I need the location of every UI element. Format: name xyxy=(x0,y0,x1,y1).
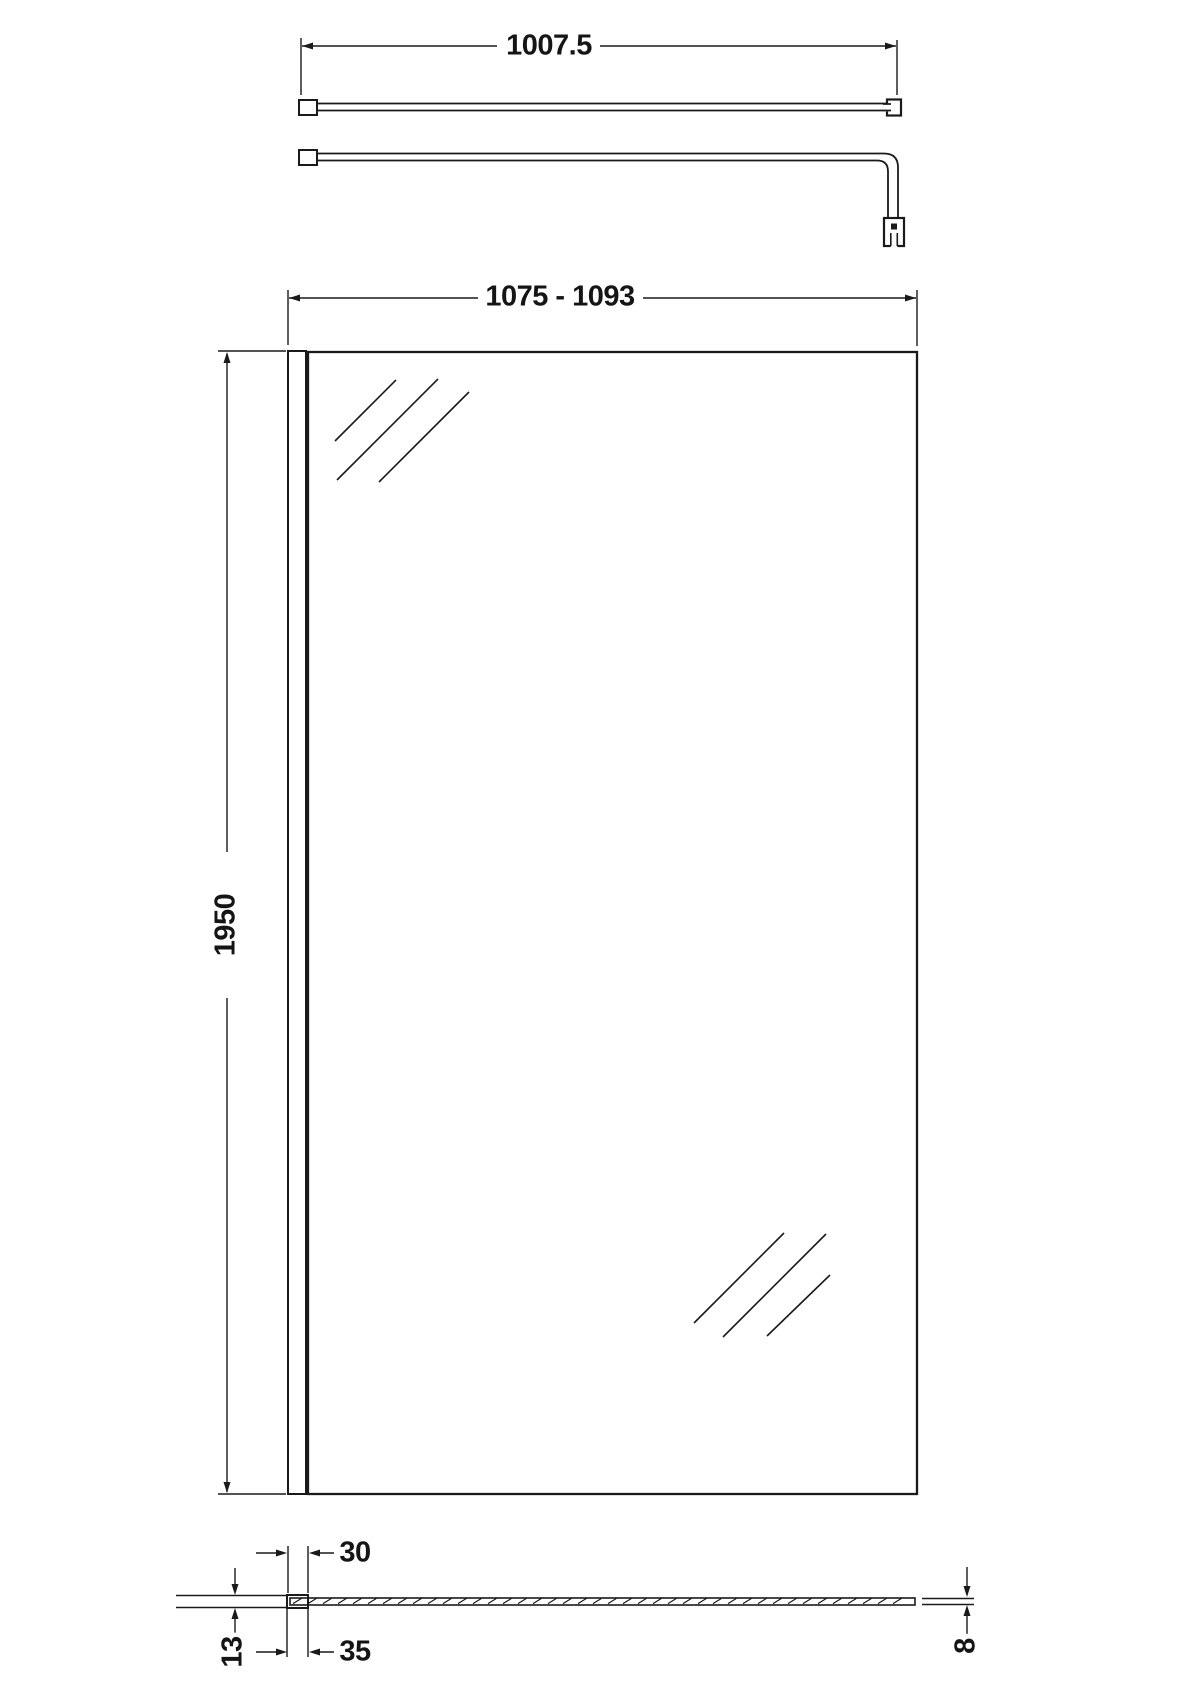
dim-label-profile-front-width: 30 xyxy=(335,1539,374,1568)
clamp-fork-slot xyxy=(891,233,898,248)
arrow-left-icon xyxy=(309,1649,320,1656)
panel-front-elevation xyxy=(288,351,917,1494)
glass-mark-line xyxy=(694,1233,784,1323)
dim-label-height: 1950 xyxy=(212,890,241,961)
support-bar-inner-edge xyxy=(317,161,888,219)
clamp-screw-icon xyxy=(891,224,897,230)
support-bar-side-view xyxy=(299,100,901,116)
support-bar-tube xyxy=(317,104,889,111)
shower-screen-technical-drawing: 1007.5 1075 - 1093 1950 30 35 13 8 xyxy=(0,0,1200,1698)
glass-hatch-bottom-right xyxy=(694,1233,830,1337)
dim-label-glass-thickness: 8 xyxy=(952,1634,981,1658)
support-bar-plan-view xyxy=(299,150,904,248)
arrow-right-icon xyxy=(276,1550,287,1557)
drawing-linework xyxy=(0,0,1200,1698)
glass-mark-line xyxy=(335,380,396,441)
plan-section-view xyxy=(287,1595,915,1608)
dim-label-bar-length: 1007.5 xyxy=(502,32,596,61)
profile-depth-extension-lines xyxy=(287,1609,308,1657)
wall-bracket xyxy=(299,150,317,165)
profile-thickness-extension-lines xyxy=(176,1596,286,1608)
wall-bracket xyxy=(299,100,317,115)
arrow-up-icon xyxy=(224,352,231,363)
arrow-up-icon xyxy=(964,1605,971,1616)
dim-label-profile-overall-depth: 35 xyxy=(335,1638,374,1667)
arrow-down-icon xyxy=(224,1482,231,1493)
glass-thickness-extension-lines xyxy=(922,1599,974,1605)
glass-mark-line xyxy=(337,379,438,480)
arrow-down-icon xyxy=(232,1584,239,1595)
arrow-left-icon xyxy=(309,1550,320,1557)
glass-mark-line xyxy=(379,392,469,482)
arrow-right-icon xyxy=(276,1649,287,1656)
arrow-right-icon xyxy=(905,295,916,302)
arrow-down-icon xyxy=(964,1586,971,1597)
arrow-up-icon xyxy=(232,1608,239,1619)
support-bar-outer-edge xyxy=(317,154,898,219)
dim-label-overall-width: 1075 - 1093 xyxy=(481,283,638,312)
dim-label-profile-thickness: 13 xyxy=(219,1632,248,1671)
profile-width-extension-lines xyxy=(288,1546,308,1593)
glass-panel xyxy=(308,352,917,1494)
arrow-left-icon xyxy=(289,295,300,302)
glass-hatch-top-left xyxy=(335,379,469,482)
glass-section-hatch xyxy=(293,1598,902,1603)
arrow-left-icon xyxy=(302,43,313,50)
arrow-right-icon xyxy=(885,43,896,50)
wall-profile-elevation xyxy=(288,351,306,1494)
glass-mark-line xyxy=(723,1234,826,1337)
